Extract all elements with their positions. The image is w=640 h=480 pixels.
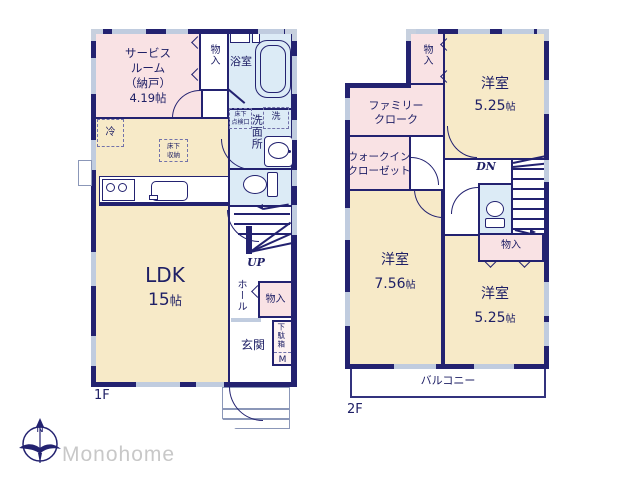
wall-1f-bottom [91,382,297,387]
window [292,205,297,235]
stair-tread [513,198,545,200]
window [474,364,514,369]
stair-tread [513,168,545,170]
window [345,292,350,326]
room-service-label: サービス ルーム （納戸） 4.19帖 [114,46,182,106]
window [502,29,534,34]
hall-label: ホール [234,279,247,312]
walk-in-closet-label: ウォークイン クローゼット [347,151,411,178]
wall-corner-cap [292,29,297,41]
kitchen-counter-edge [99,202,229,206]
stove-burner-icon [106,183,115,192]
stair-tread [513,208,545,210]
window [112,29,146,34]
room-a-label: 洋室 [466,75,524,93]
window [91,58,96,94]
family-cloak-label: ファミリー クローク [350,99,442,128]
window [544,160,549,182]
kitchen-faucet-icon [149,195,158,200]
stairs-dn-label: DN [472,160,500,174]
washroom-label: 洗面所 [249,114,263,150]
floor2-label: 2F [347,402,363,419]
bath-counter-icon [230,33,250,43]
room-b-label: 洋室 [366,251,424,269]
wall-2f-bottom [345,364,549,369]
floorplan-canvas: 床下 点検口 洗 冷 床下 収納 [0,0,640,480]
window [544,322,549,346]
shoe-box-label: 下駄箱 [276,323,286,349]
closet-2f-mid-label: 物入 [484,239,538,252]
room-c-size-num: 5.25 [474,310,505,326]
bathroom-label: 浴室 [226,55,256,69]
stair-arrow-icon [530,229,536,235]
stairwell-2f [511,158,547,236]
window [166,29,188,34]
shoe-box-m-label: M [272,355,293,367]
shoe-box-divider [274,352,291,353]
window-shutter-box [78,160,92,186]
window [258,29,284,34]
window [416,29,438,34]
closet-1f-top-label: 物入 [207,44,220,66]
window [91,252,96,286]
window [458,29,490,34]
closet-1f-label: 物入 [259,293,292,306]
room-a-size-num: 5.25 [474,98,505,114]
wall-corner-cap [406,29,411,41]
toilet-icon [486,201,504,217]
stair-tread [513,218,545,220]
washbasin-tap-icon [288,150,291,153]
room-b-size-num: 7.56 [374,276,405,292]
ldk-size-label: 15帖 [118,289,212,311]
genkan-step-line [231,318,261,322]
fridge-box: 冷 [97,119,124,147]
stairs-up-label: UP [240,256,272,270]
window [544,282,549,316]
toilet-icon [243,175,267,194]
window [544,80,549,114]
ldk-size-num: 15 [148,290,170,310]
window [292,120,297,140]
ldk-label: LDK [118,262,212,288]
window [394,364,436,369]
compass-n-label: N [36,424,43,435]
room-b-size-unit: 帖 [406,280,416,291]
closet-2f-top-label: 物入 [420,44,433,66]
room-c-label: 洋室 [466,285,524,303]
washing-machine-box: 洗 [263,107,289,129]
room-c-size-label: 5.25帖 [462,309,528,327]
entrance-label: 玄関 [235,338,271,354]
wall-corner-cap [544,29,549,41]
stair-tread [513,188,545,190]
brand-logo-text: Monohome [62,441,222,468]
room-a-size-unit: 帖 [506,102,516,113]
stove-burner-icon [118,183,127,192]
toilet-tank-icon [267,172,278,197]
washbasin-bowl-icon [268,142,289,159]
bath-counter-icon [252,33,260,43]
window [136,382,180,387]
room-c-size-unit: 帖 [506,314,516,325]
toilet-tank-icon [485,218,505,228]
window [91,336,96,366]
stair-tread [513,178,545,180]
bathtub-inner-icon [260,45,286,93]
underfloor-storage-box: 床下 収納 [159,139,188,162]
compass-icon: N [14,416,66,470]
floor1-label: 1F [94,388,110,405]
room-a-size-label: 5.25帖 [462,97,528,115]
room-b-size-label: 7.56帖 [362,275,428,293]
balcony-label: バルコニー [412,374,484,388]
window [196,382,224,387]
wall-2f-step [345,83,411,88]
window [292,56,297,94]
wall-corner-cap [91,29,96,41]
window [345,208,350,240]
window [292,170,297,186]
ldk-size-unit: 帖 [170,294,182,308]
